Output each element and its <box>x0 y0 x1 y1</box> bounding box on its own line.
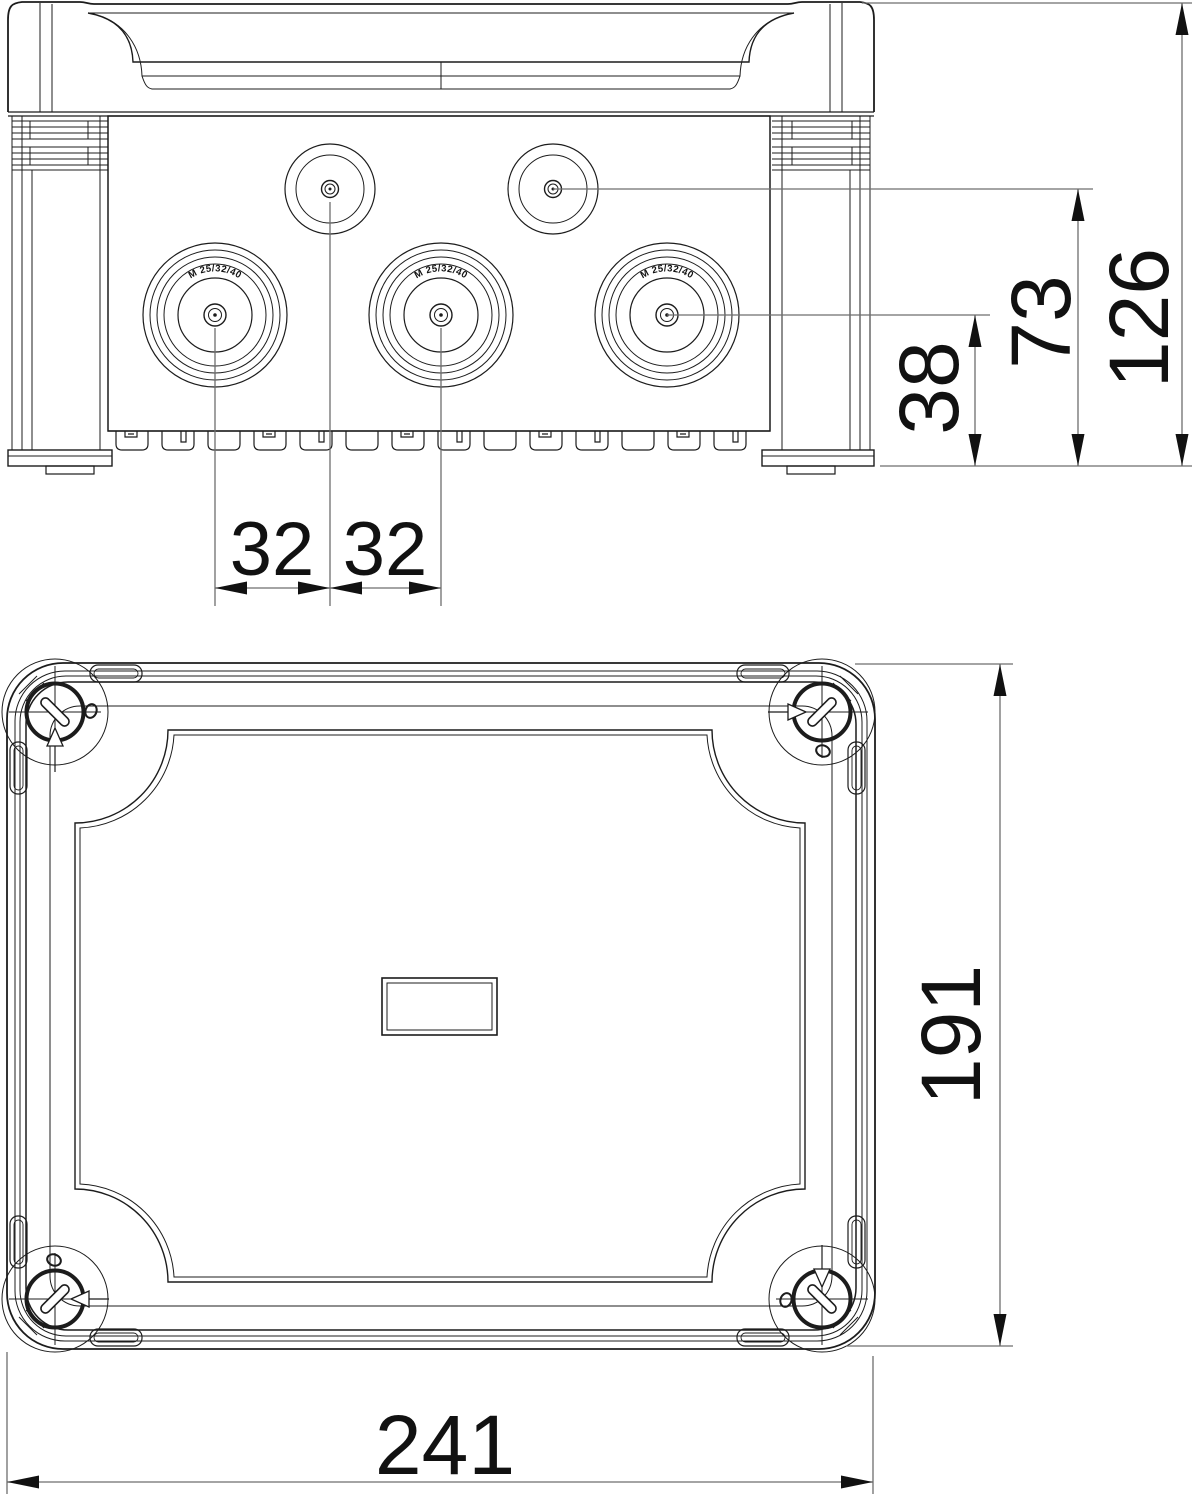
dim-overall-height: 126 <box>1092 248 1186 388</box>
lid-corner-edges <box>40 3 842 112</box>
dim-spacing-right: 32 <box>343 507 428 592</box>
right-tower-ribs <box>772 121 870 170</box>
lid-screw-top-right <box>768 666 868 759</box>
screw-pointer-bl <box>71 1291 89 1307</box>
lid-outline-outer <box>7 663 875 1349</box>
right-foot-tab <box>787 466 835 474</box>
dim-lower-entry-height: 38 <box>882 341 976 434</box>
label-window-outer <box>382 978 497 1035</box>
left-tower-edges <box>12 116 108 450</box>
left-tower-ribs <box>12 121 108 170</box>
lid-recess-outer <box>88 13 794 62</box>
dimension-lines <box>7 3 1192 1494</box>
lid-view <box>2 659 875 1352</box>
dimension-drawing-page: M 25/32/40 M 25/32/40 M 25/32/40 <box>0 0 1199 1500</box>
corner-wedges <box>19 676 858 1335</box>
screw-pointer-tl <box>47 728 63 746</box>
lid-field-outer <box>75 730 805 1282</box>
dim-lid-height: 191 <box>904 965 998 1105</box>
dim-lid-width: 241 <box>375 1398 515 1492</box>
mounting-teeth <box>108 431 770 450</box>
right-foot <box>762 450 874 466</box>
zero-mark-tl <box>83 703 98 720</box>
lid-outline <box>8 2 874 112</box>
right-tower-edges <box>770 116 870 450</box>
screw-pointer-br <box>814 1269 830 1287</box>
dimension-labels: 32 32 38 73 126 191 241 <box>230 248 1186 1492</box>
dimension-arrows <box>7 3 1189 1489</box>
label-window-inner <box>387 983 492 1030</box>
dim-upper-entry-height: 73 <box>994 275 1088 368</box>
dim-spacing-left: 32 <box>230 507 315 592</box>
left-foot <box>8 450 112 466</box>
latch-tabs <box>10 665 865 1346</box>
dimension-drawing-canvas: M 25/32/40 M 25/32/40 M 25/32/40 <box>0 0 1199 1500</box>
zero-mark-tr <box>815 743 832 758</box>
left-foot-tab <box>46 466 94 474</box>
lid-wall-base <box>50 706 832 1306</box>
lid-field-inner <box>80 735 800 1277</box>
zero-mark-bl <box>46 1252 63 1267</box>
